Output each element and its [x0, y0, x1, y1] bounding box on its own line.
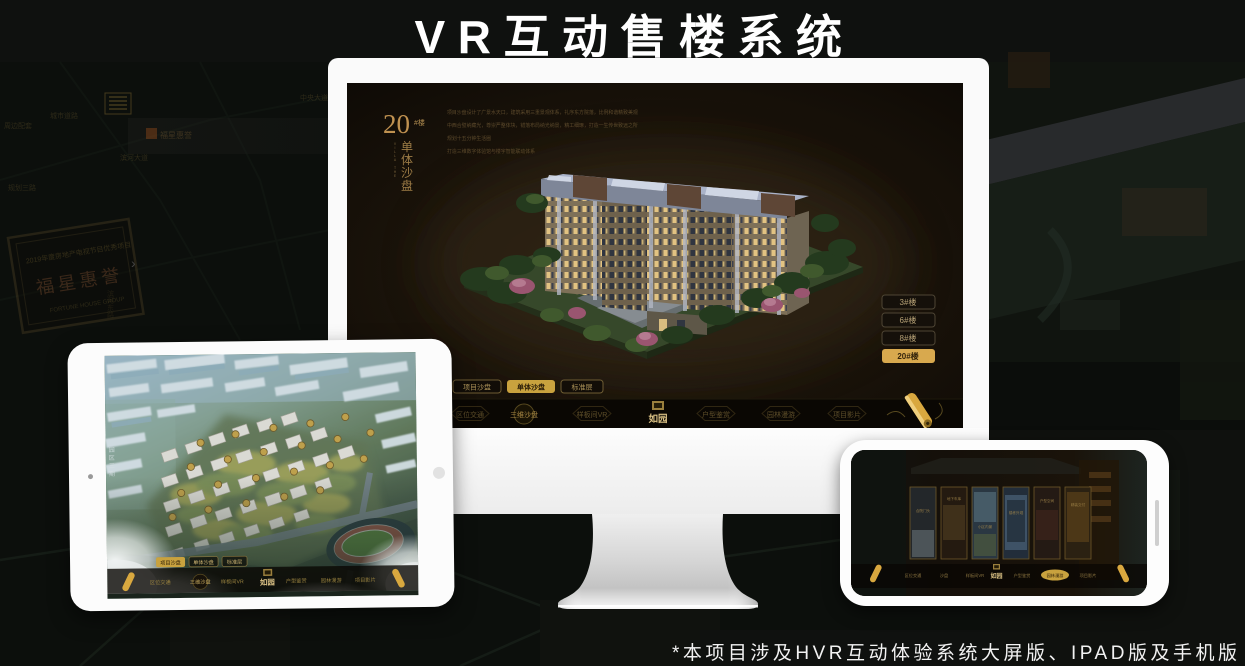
svg-text:单: 单: [401, 140, 413, 154]
svg-text:6#楼: 6#楼: [900, 315, 917, 325]
svg-text:园林漫游: 园林漫游: [321, 576, 342, 584]
svg-text:中央大道: 中央大道: [300, 93, 328, 102]
svg-text:福星惠誉: 福星惠誉: [160, 130, 192, 140]
svg-text:样板间VR: 样板间VR: [966, 572, 984, 579]
svg-text:中西合璧纳藏光，尊崇严整体块，错落布局纳光纳景，精工细琢，打: 中西合璧纳藏光，尊崇严整体块，错落布局纳光纳景，精工细琢，打造一生传世致远之所: [447, 122, 638, 129]
svg-text:20: 20: [383, 109, 410, 139]
svg-text:3#楼: 3#楼: [900, 297, 917, 307]
svg-text:沙: 沙: [401, 166, 413, 180]
svg-text:盘: 盘: [401, 178, 413, 193]
svg-text:标准层: 标准层: [227, 558, 243, 566]
svg-text:项目影片: 项目影片: [1080, 572, 1097, 579]
svg-text:周边配套: 周边配套: [4, 121, 32, 130]
svg-text:单体沙盘: 单体沙盘: [193, 558, 214, 566]
svg-text:小区内景: 小区内景: [978, 524, 993, 529]
svg-text:项目沙盘: 项目沙盘: [463, 383, 491, 392]
svg-text:项目影片: 项目影片: [355, 576, 376, 584]
svg-text:合院门头: 合院门头: [916, 508, 931, 513]
svg-text:项目沙盘设计了广景水天口，建筑采用三重景观体系，礼序东方院落: 项目沙盘设计了广景水天口，建筑采用三重景观体系，礼序东方院落，比例和谐精致美观: [447, 109, 638, 116]
svg-text:楼栋外观: 楼栋外观: [1009, 510, 1024, 515]
svg-text:精装交付: 精装交付: [1071, 502, 1086, 507]
svg-text:园林漫游: 园林漫游: [1047, 572, 1065, 579]
svg-text:#楼: #楼: [414, 118, 425, 127]
svg-text:户型空间: 户型空间: [1040, 498, 1055, 503]
svg-text:›: ›: [131, 255, 136, 271]
svg-text:区位交通: 区位交通: [905, 572, 923, 579]
svg-text:城市道路: 城市道路: [50, 111, 78, 120]
svg-text:户型鉴赏: 户型鉴赏: [286, 576, 307, 584]
svg-text:如园: 如园: [648, 413, 667, 425]
svg-text:如园: 如园: [260, 577, 276, 587]
svg-text:地下车库: 地下车库: [947, 496, 962, 501]
svg-text:项目沙盘: 项目沙盘: [160, 558, 181, 566]
svg-text:体: 体: [401, 153, 413, 167]
svg-text:户型鉴赏: 户型鉴赏: [1014, 572, 1031, 579]
svg-text:如园: 如园: [990, 572, 1002, 580]
svg-text:园林漫游: 园林漫游: [767, 410, 795, 419]
svg-text:规划十五分钟生活圈: 规划十五分钟生活圈: [447, 135, 491, 142]
svg-text:户型鉴赏: 户型鉴赏: [702, 410, 730, 419]
svg-text:8#楼: 8#楼: [900, 333, 917, 343]
svg-text:滨河大道: 滨河大道: [120, 153, 148, 162]
svg-text:规划三路: 规划三路: [8, 183, 36, 192]
svg-text:沙盘: 沙盘: [940, 572, 948, 578]
svg-text:三维沙盘: 三维沙盘: [510, 410, 538, 419]
svg-text:打造三维数字体验馆与楼宇智能联动体系: 打造三维数字体验馆与楼宇智能联动体系: [447, 148, 535, 155]
svg-text:样板间VR: 样板间VR: [221, 577, 244, 585]
svg-text:单体沙盘: 单体沙盘: [517, 383, 545, 392]
svg-text:三维沙盘: 三维沙盘: [190, 578, 211, 586]
svg-text:区位交通: 区位交通: [456, 410, 484, 419]
svg-text:20#楼: 20#楼: [897, 351, 918, 361]
svg-text:标准层: 标准层: [572, 383, 593, 392]
svg-text:区位交通: 区位交通: [150, 578, 172, 586]
svg-text:项目影片: 项目影片: [833, 410, 861, 419]
svg-text:样板间VR: 样板间VR: [577, 410, 608, 419]
